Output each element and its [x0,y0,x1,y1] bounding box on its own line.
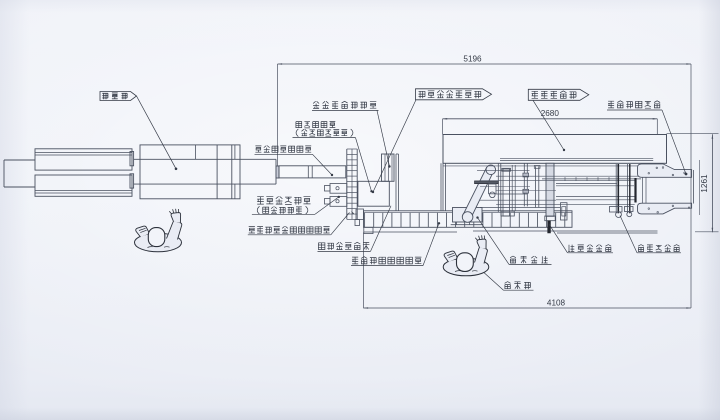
svg-text:4108: 4108 [547,298,566,307]
svg-text:1261: 1261 [700,174,709,193]
svg-text:5196: 5196 [463,55,482,64]
